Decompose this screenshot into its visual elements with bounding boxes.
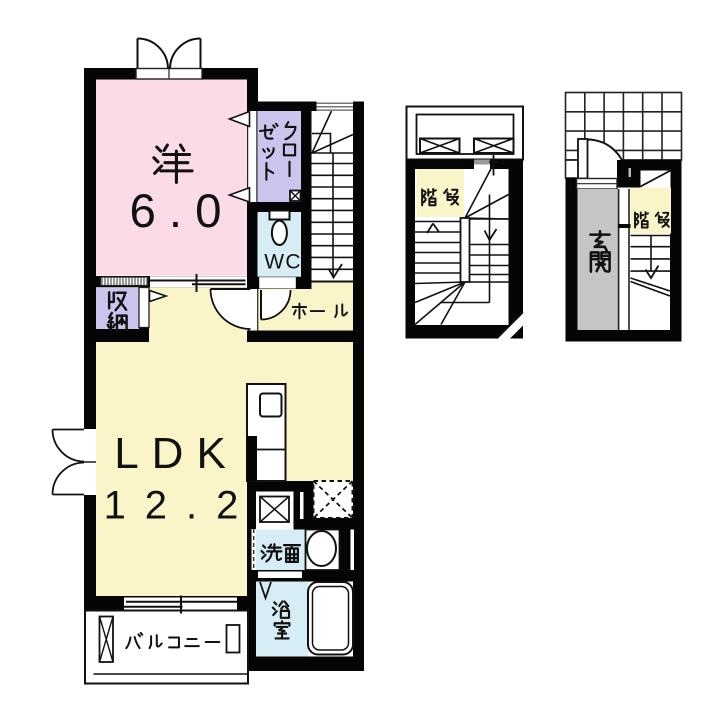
- svg-text:LDK: LDK: [114, 429, 239, 478]
- svg-text:6.0: 6.0: [129, 185, 234, 238]
- svg-text:WC: WC: [264, 251, 301, 274]
- svg-text:12.2: 12.2: [104, 484, 258, 528]
